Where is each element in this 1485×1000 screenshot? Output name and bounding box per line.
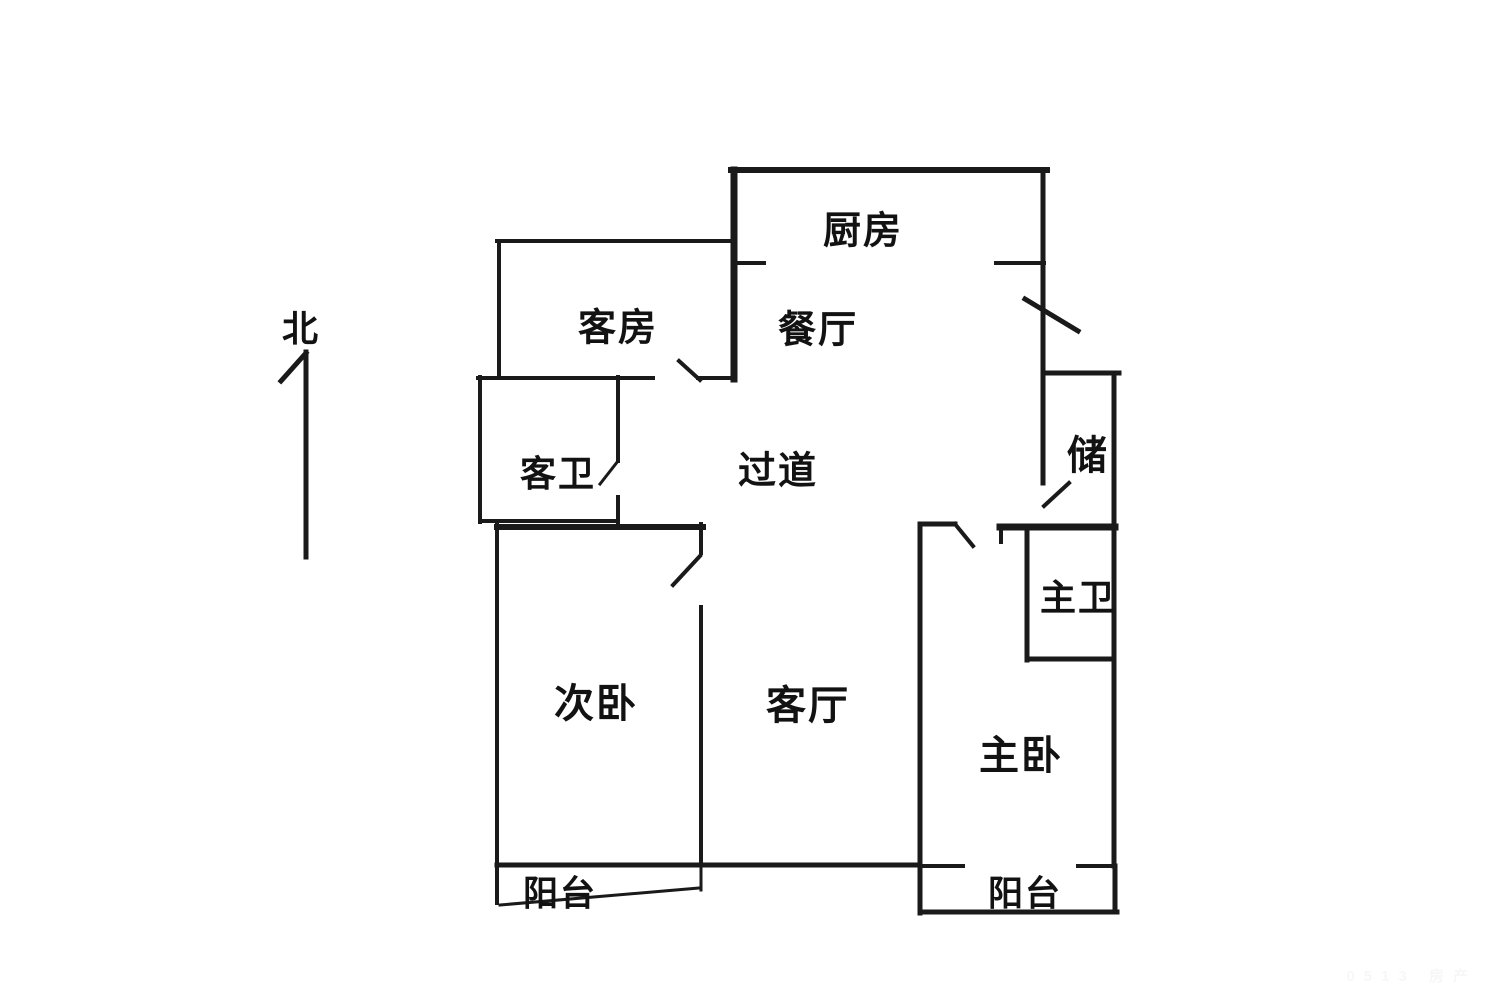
room-label-kitchen: 厨房	[823, 200, 903, 255]
room-label-living-room: 客厅	[766, 673, 850, 731]
room-label-north: 北	[282, 300, 320, 352]
room-label-balcony-left: 阳台	[523, 866, 597, 917]
room-label-guest-bathroom: 客卫	[520, 445, 596, 497]
guest-bath-door-swing	[600, 461, 618, 484]
floorplan: 北厨房客房餐厅客卫过道储主卫次卧客厅主卧阳台阳台 0513 房产	[0, 0, 1485, 1000]
room-label-hallway: 过道	[738, 440, 818, 495]
floorplan-walls-svg	[0, 0, 1485, 1000]
entry-door-swing	[1025, 299, 1078, 331]
storage-door-swing	[1044, 483, 1069, 506]
master-bedroom-door-swing	[955, 524, 973, 546]
secondary-bedroom-door-swing	[673, 556, 700, 585]
room-label-secondary-bedroom: 次卧	[554, 671, 638, 729]
room-label-guest-room: 客房	[578, 297, 658, 352]
watermark: 0513 房产	[1346, 965, 1477, 986]
room-label-storage: 储	[1067, 423, 1109, 481]
room-label-balcony-right: 阳台	[988, 866, 1062, 917]
north-arrow-head	[281, 353, 306, 381]
room-label-dining-room: 餐厅	[778, 299, 858, 354]
room-label-master-bedroom: 主卧	[979, 723, 1063, 781]
room-label-master-bathroom: 主卫	[1040, 569, 1116, 621]
